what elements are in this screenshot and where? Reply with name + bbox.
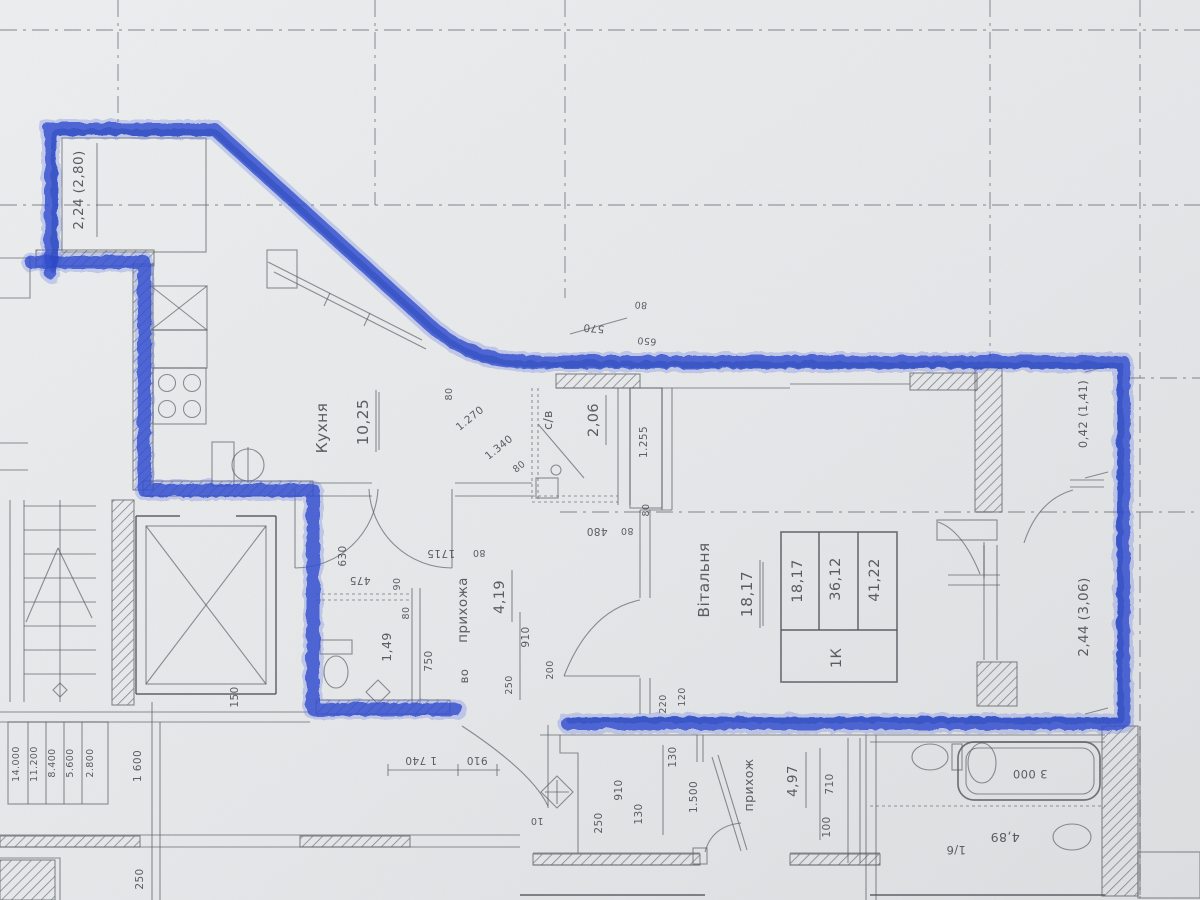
level-label: 2.800 — [85, 748, 96, 777]
level-label: 11.200 — [29, 746, 40, 782]
wall-hatch — [1102, 726, 1138, 896]
dim-130-upper: 130 — [667, 746, 679, 767]
dim-750: 750 — [423, 650, 435, 671]
floor-plan-scan: 2,24 (2,80) Кухня 10,25 с/в 2,06 1.255 8… — [0, 0, 1200, 900]
table-cell-unit: 1К — [829, 648, 845, 669]
wall-hatch — [556, 374, 640, 388]
dim-910-lower: 910 — [613, 779, 625, 800]
hall-extra-label: во — [457, 669, 471, 684]
dim-80-1715: 80 — [473, 547, 486, 558]
dim-80-window: 80 — [634, 298, 648, 310]
dim-250-lower: 250 — [593, 812, 605, 833]
neighbor-hall-area-label: 4,97 — [785, 765, 801, 797]
wall-hatch — [0, 836, 140, 847]
dim-250-corridor: 250 — [134, 868, 146, 889]
neighbor-bath-area-label: 4,89 — [990, 830, 1019, 845]
kitchen-name-label: Кухня — [313, 403, 331, 454]
dim-80-pair: 80 — [621, 525, 634, 536]
wall-hatch — [0, 860, 55, 900]
dim-80-door: 80 — [444, 388, 455, 401]
dim-570: 570 — [583, 321, 605, 335]
living-area-label: 18,17 — [738, 571, 756, 617]
floor-plan-svg: 2,24 (2,80) Кухня 10,25 с/в 2,06 1.255 8… — [0, 0, 1200, 900]
dim-1500: 1.500 — [688, 781, 700, 813]
stair-wall-hatch — [112, 500, 134, 705]
sv-area-label: 2,06 — [586, 403, 602, 437]
bathtub-length-label: 3 000 — [1013, 767, 1048, 781]
wall-hatch — [975, 368, 1002, 512]
loggia-small-area-label: 0,42 (1,41) — [1076, 380, 1090, 448]
level-label: 5.600 — [65, 748, 76, 777]
balcony-area-label: 2,24 (2,80) — [71, 150, 87, 229]
wall-hatch — [300, 836, 410, 847]
neighbor-bath-note-label: 1/6 — [946, 843, 966, 857]
sv-name-label: с/в — [540, 410, 555, 430]
loggia-right-area-label: 2,44 (3,06) — [1076, 577, 1092, 656]
dim-120: 120 — [677, 687, 688, 706]
dim-250-hall: 250 — [504, 675, 515, 694]
dim-650: 650 — [637, 334, 657, 347]
wall-hatch — [977, 662, 1017, 706]
dim-90: 90 — [392, 578, 403, 591]
dim-150: 150 — [229, 686, 241, 707]
dim-630: 630 — [337, 545, 349, 566]
table-cell-total: 41,22 — [867, 558, 883, 602]
dim-1255: 1.255 — [638, 426, 650, 458]
kitchen-area-label: 10,25 — [354, 399, 372, 445]
dim-130-lower: 130 — [633, 803, 645, 824]
dim-220: 220 — [658, 694, 669, 713]
dim-710: 710 — [824, 773, 836, 794]
living-name-label: Вітальня — [695, 542, 713, 617]
dim-10: 10 — [531, 815, 544, 826]
wall-block — [910, 373, 977, 390]
hall-area-label: 4,19 — [492, 580, 508, 614]
dim-200: 200 — [545, 660, 556, 679]
dim-475: 475 — [349, 574, 370, 586]
neighbor-hall-name-label: прихож — [741, 759, 756, 812]
wall-hatch — [533, 854, 700, 865]
dim-480: 480 — [586, 525, 607, 537]
dim-910-hall: 910 — [520, 626, 532, 647]
hall-name-label: прихожа — [455, 577, 471, 643]
level-label: 8.400 — [47, 748, 58, 777]
dim-80-shaft: 80 — [641, 504, 652, 517]
dim-100: 100 — [821, 816, 833, 837]
dim-80-wc: 80 — [401, 607, 412, 620]
dim-1740: 1 740 — [405, 754, 437, 766]
table-cell-area: 36,12 — [828, 557, 844, 601]
dim-1600: 1 600 — [132, 750, 144, 782]
dim-910-entry: 910 — [466, 754, 487, 766]
level-label: 14.000 — [11, 746, 22, 782]
dim-1715: 1715 — [427, 547, 455, 559]
wc-area-label: 1,49 — [379, 632, 394, 661]
table-cell-living: 18,17 — [790, 559, 806, 603]
